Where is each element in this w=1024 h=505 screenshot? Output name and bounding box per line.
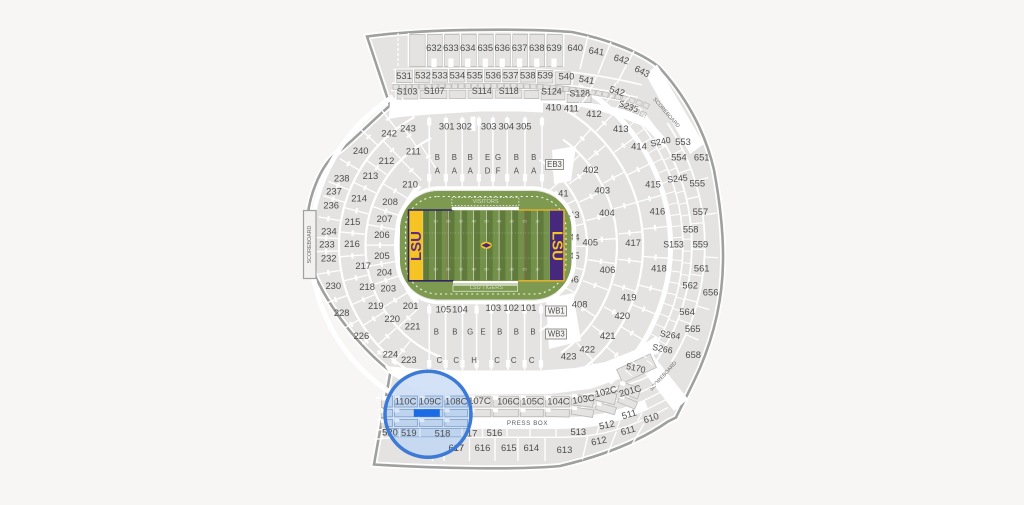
svg-text:302: 302 [456, 121, 472, 132]
svg-text:641: 641 [588, 44, 605, 57]
svg-text:212: 212 [379, 155, 395, 166]
svg-text:411: 411 [564, 102, 579, 113]
svg-text:559: 559 [693, 238, 709, 249]
svg-text:418: 418 [651, 263, 667, 274]
svg-text:218: 218 [359, 281, 375, 292]
svg-text:A: A [452, 166, 458, 175]
svg-text:H: H [471, 356, 477, 365]
svg-text:B: B [452, 328, 457, 337]
svg-text:230: 230 [325, 280, 341, 291]
svg-text:516: 516 [487, 427, 503, 438]
svg-text:224: 224 [383, 349, 399, 360]
svg-text:C: C [494, 356, 500, 365]
svg-text:220: 220 [384, 313, 400, 324]
svg-text:237: 237 [326, 185, 342, 196]
svg-text:40: 40 [472, 267, 476, 271]
svg-text:104: 104 [452, 304, 468, 315]
svg-text:E: E [480, 328, 485, 337]
svg-text:539: 539 [537, 70, 553, 81]
svg-text:40: 40 [472, 220, 476, 224]
svg-text:109C: 109C [419, 395, 442, 406]
svg-text:204: 204 [377, 267, 393, 278]
svg-text:639: 639 [546, 42, 562, 53]
svg-text:VISITORS: VISITORS [473, 199, 499, 205]
svg-text:S107: S107 [424, 86, 445, 96]
svg-text:S103: S103 [397, 87, 418, 97]
svg-text:EB3: EB3 [547, 160, 562, 169]
svg-text:415: 415 [645, 179, 661, 190]
svg-text:557: 557 [693, 206, 709, 217]
svg-text:638: 638 [529, 42, 545, 53]
svg-text:30: 30 [510, 267, 514, 271]
svg-text:A: A [468, 166, 474, 175]
svg-text:206: 206 [374, 229, 390, 240]
svg-text:105C: 105C [521, 395, 544, 406]
svg-text:104C: 104C [547, 395, 570, 406]
svg-text:LSU TIGERS: LSU TIGERS [470, 285, 503, 291]
svg-text:110C: 110C [395, 395, 417, 406]
svg-text:243: 243 [400, 122, 416, 133]
svg-text:207: 207 [377, 213, 393, 224]
svg-text:658: 658 [685, 349, 701, 360]
svg-text:10: 10 [433, 220, 437, 224]
svg-text:213: 213 [363, 170, 379, 181]
svg-text:519: 519 [401, 427, 417, 438]
svg-text:236: 236 [323, 200, 339, 211]
svg-text:LSU: LSU [408, 231, 425, 261]
svg-text:303: 303 [481, 121, 497, 132]
svg-text:B: B [530, 328, 535, 337]
svg-text:535: 535 [467, 70, 483, 81]
svg-text:B: B [452, 153, 457, 162]
svg-text:540: 540 [559, 70, 575, 81]
svg-text:228: 228 [334, 307, 350, 318]
svg-text:656: 656 [703, 287, 719, 298]
svg-text:LSU: LSU [548, 231, 565, 261]
svg-text:536: 536 [485, 70, 501, 81]
svg-text:B: B [497, 328, 502, 337]
svg-text:50: 50 [484, 267, 488, 271]
svg-text:A: A [531, 166, 537, 175]
svg-text:WB3: WB3 [548, 330, 565, 339]
svg-text:215: 215 [345, 216, 361, 227]
svg-text:634: 634 [460, 42, 476, 53]
svg-text:240: 240 [353, 145, 369, 156]
svg-text:420: 420 [614, 310, 630, 321]
svg-text:408: 408 [572, 299, 588, 310]
svg-text:632: 632 [426, 42, 442, 53]
svg-text:412: 412 [586, 108, 602, 119]
svg-text:403: 403 [594, 185, 610, 196]
svg-text:640: 640 [567, 42, 583, 53]
svg-text:40: 40 [497, 220, 501, 224]
svg-text:217: 217 [355, 260, 371, 271]
svg-text:B: B [514, 153, 519, 162]
svg-text:561: 561 [694, 263, 710, 274]
svg-text:537: 537 [503, 70, 519, 81]
svg-text:518: 518 [435, 427, 451, 438]
svg-text:234: 234 [321, 226, 337, 237]
svg-text:211: 211 [406, 146, 421, 157]
svg-text:B: B [468, 153, 473, 162]
svg-text:402: 402 [583, 164, 599, 175]
svg-text:553: 553 [675, 136, 691, 147]
svg-text:20: 20 [446, 220, 450, 224]
svg-text:107C: 107C [468, 395, 491, 406]
svg-text:20: 20 [522, 220, 526, 224]
svg-text:S124: S124 [541, 87, 562, 97]
svg-text:108C: 108C [445, 395, 468, 406]
svg-text:205: 205 [374, 250, 390, 261]
svg-text:S153: S153 [663, 239, 684, 249]
svg-text:203: 203 [380, 283, 396, 294]
svg-text:422: 422 [579, 343, 595, 354]
svg-text:636: 636 [494, 42, 510, 53]
svg-text:613: 613 [557, 444, 573, 455]
svg-text:405: 405 [582, 237, 598, 248]
svg-text:562: 562 [682, 279, 698, 290]
svg-text:534: 534 [450, 70, 466, 81]
svg-text:105: 105 [436, 304, 452, 315]
svg-text:A: A [514, 166, 520, 175]
svg-text:238: 238 [334, 173, 350, 184]
svg-text:301: 301 [439, 121, 455, 132]
svg-text:233: 233 [319, 238, 335, 249]
svg-text:B: B [531, 153, 536, 162]
svg-text:S128: S128 [570, 89, 591, 99]
svg-text:513: 513 [570, 426, 586, 437]
svg-text:D: D [485, 166, 491, 175]
svg-text:G: G [467, 328, 473, 337]
svg-text:538: 538 [520, 70, 536, 81]
svg-text:C: C [529, 356, 535, 365]
svg-text:40: 40 [497, 267, 501, 271]
svg-text:232: 232 [321, 253, 337, 264]
svg-text:555: 555 [689, 178, 705, 189]
svg-text:A: A [435, 166, 441, 175]
svg-text:616: 616 [475, 442, 491, 453]
svg-text:30: 30 [510, 220, 514, 224]
svg-text:30: 30 [459, 267, 463, 271]
svg-text:410: 410 [546, 102, 562, 113]
svg-text:219: 219 [368, 300, 384, 311]
svg-text:30: 30 [459, 220, 463, 224]
svg-text:B: B [514, 328, 519, 337]
svg-text:210: 210 [402, 179, 418, 190]
svg-text:565: 565 [685, 323, 701, 334]
svg-text:533: 533 [432, 69, 448, 80]
svg-text:223: 223 [401, 354, 417, 365]
svg-text:G: G [495, 153, 501, 162]
svg-text:532: 532 [415, 69, 431, 80]
svg-text:C: C [437, 356, 443, 365]
svg-text:637: 637 [512, 42, 528, 53]
svg-text:419: 419 [621, 291, 637, 302]
svg-text:S114: S114 [472, 86, 492, 96]
svg-text:414: 414 [631, 140, 647, 151]
svg-text:208: 208 [382, 196, 398, 207]
svg-text:404: 404 [599, 207, 615, 218]
svg-text:B: B [434, 328, 439, 337]
svg-text:10: 10 [535, 220, 539, 224]
svg-text:417: 417 [625, 237, 641, 248]
svg-text:304: 304 [498, 121, 514, 132]
svg-text:615: 615 [501, 442, 517, 453]
svg-text:S245: S245 [667, 173, 689, 185]
svg-text:C: C [453, 356, 459, 365]
svg-text:423: 423 [561, 350, 577, 361]
svg-text:305: 305 [516, 121, 532, 132]
svg-text:651: 651 [694, 151, 710, 162]
svg-text:614: 614 [523, 442, 539, 453]
svg-text:WB1: WB1 [548, 307, 565, 316]
svg-text:421: 421 [600, 330, 616, 341]
svg-text:20: 20 [446, 267, 450, 271]
svg-text:C: C [511, 356, 517, 365]
svg-text:406: 406 [600, 264, 616, 275]
svg-text:221: 221 [405, 321, 421, 332]
svg-text:201: 201 [403, 300, 419, 311]
svg-text:214: 214 [351, 192, 367, 203]
svg-text:531: 531 [396, 70, 412, 81]
svg-text:226: 226 [354, 330, 370, 341]
svg-text:PRESS BOX: PRESS BOX [507, 420, 548, 427]
svg-text:413: 413 [613, 123, 629, 134]
svg-text:554: 554 [671, 151, 687, 162]
svg-text:10: 10 [535, 267, 539, 271]
svg-text:SCOREBOARD: SCOREBOARD [307, 225, 313, 263]
svg-text:242: 242 [381, 128, 397, 139]
svg-text:106C: 106C [497, 395, 520, 406]
svg-text:F: F [496, 166, 501, 175]
svg-text:B: B [435, 153, 440, 162]
svg-text:416: 416 [650, 205, 666, 216]
svg-text:558: 558 [683, 224, 699, 235]
svg-text:633: 633 [443, 42, 459, 53]
svg-text:50: 50 [484, 220, 488, 224]
svg-text:E: E [485, 153, 490, 162]
svg-text:564: 564 [679, 306, 695, 317]
svg-text:S118: S118 [499, 86, 519, 96]
svg-text:10: 10 [433, 267, 437, 271]
svg-text:20: 20 [522, 267, 526, 271]
svg-text:635: 635 [477, 42, 493, 53]
svg-text:216: 216 [344, 238, 360, 249]
